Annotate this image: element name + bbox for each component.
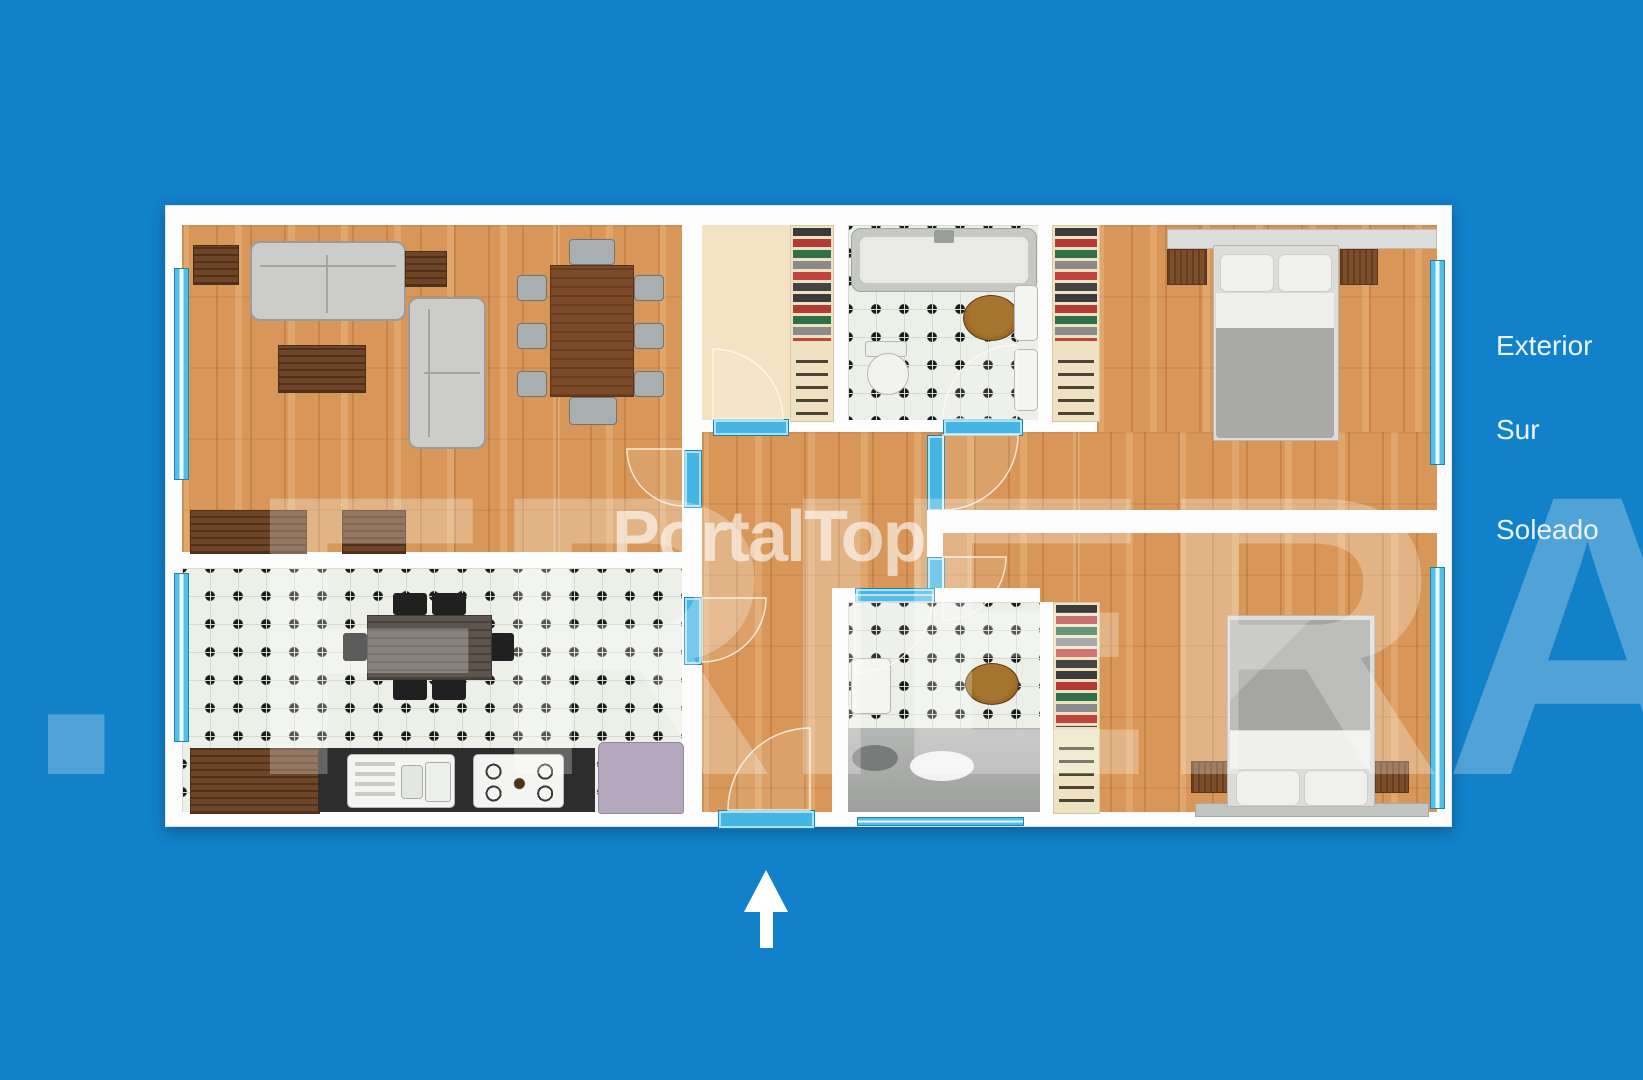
- bathroom1-cabinet: [1014, 349, 1038, 411]
- clothes-rail-icon: [793, 228, 831, 341]
- arrow-shaft: [760, 910, 773, 948]
- kitchen-chair: [490, 633, 514, 661]
- window-bedroom2: [1430, 567, 1445, 809]
- dining-chair: [569, 397, 617, 425]
- pillow: [1278, 254, 1332, 292]
- kitchen-chair: [432, 593, 466, 615]
- dining-chair: [634, 371, 664, 397]
- kitchen-table: [367, 615, 492, 680]
- bathtub-basin: [860, 237, 1028, 283]
- pillow: [1220, 254, 1274, 292]
- side-table: [405, 251, 447, 287]
- nightstand: [1191, 761, 1229, 793]
- two-seat-sofa: [408, 297, 486, 449]
- apartment-entry-door: [718, 810, 815, 829]
- wardrobe-shelves: [1058, 350, 1094, 416]
- kitchen-chair: [393, 678, 427, 700]
- bathroom2-left-wall: [832, 588, 848, 812]
- dining-chair: [517, 323, 547, 349]
- pillow: [1304, 770, 1368, 806]
- screenshot-root: H. FRIERA PortalTop Exterior Sur Soleado: [0, 0, 1643, 1080]
- coffee-table: [278, 345, 366, 393]
- window-bottom: [857, 817, 1024, 826]
- bedroom1-double-bed: [1213, 245, 1339, 441]
- bedrooms-divider-wall: [943, 510, 1437, 533]
- dining-chair: [634, 275, 664, 301]
- dining-chair: [634, 323, 664, 349]
- entry-room-door: [713, 419, 789, 436]
- window-kitchen: [174, 573, 189, 742]
- bedroom2-double-bed: [1227, 615, 1375, 807]
- wardrobe-shelves: [796, 350, 828, 416]
- kitchen-chair: [343, 633, 367, 661]
- toilet: [867, 353, 909, 395]
- sofa-seam: [424, 372, 480, 374]
- sofa-seam: [428, 309, 430, 437]
- drawer-lines: [355, 762, 395, 800]
- nightstand: [1373, 761, 1409, 793]
- kitchen-wood-counter: [190, 748, 320, 814]
- window-living: [174, 268, 189, 480]
- arrow-head: [744, 870, 788, 912]
- pillow: [1236, 770, 1300, 806]
- label-sur: Sur: [1496, 414, 1540, 446]
- refrigerator: [598, 742, 684, 814]
- kitchen-door: [684, 597, 702, 665]
- bathroom1-door: [943, 419, 1023, 436]
- dining-chair: [517, 275, 547, 301]
- bedroom2-wardrobe: [1053, 602, 1100, 814]
- duvet: [1216, 328, 1334, 438]
- sofa-seam: [326, 255, 328, 313]
- bathtub-faucet: [934, 230, 954, 243]
- wall-stub: [927, 510, 943, 557]
- sideboard: [342, 510, 406, 554]
- duvet: [1230, 620, 1370, 730]
- label-exterior: Exterior: [1496, 330, 1592, 362]
- kitchen-chair: [432, 678, 466, 700]
- kitchen-chair: [393, 593, 427, 615]
- bathroom2-right-wall: [1040, 602, 1053, 812]
- three-seat-sofa: [250, 241, 406, 321]
- wardrobe-shelves: [1059, 737, 1094, 808]
- gas-hob: [473, 754, 564, 808]
- clothes-rail-icon: [1056, 605, 1097, 727]
- kitchen-sink-unit: [347, 754, 455, 808]
- north-arrow-icon: [740, 870, 792, 950]
- sofa-seam: [260, 265, 396, 267]
- dining-chair: [517, 371, 547, 397]
- bathroom2-stool: [965, 663, 1019, 705]
- side-table: [193, 245, 239, 285]
- bedroom1-wardrobe: [1052, 225, 1100, 422]
- dining-chair: [569, 239, 615, 265]
- entry-wardrobe: [790, 225, 834, 422]
- label-soleado: Soleado: [1496, 514, 1599, 546]
- bathtub: [851, 228, 1037, 292]
- living-room-door: [684, 450, 702, 508]
- bathroom2-sink: [851, 658, 891, 714]
- window-bedroom1: [1430, 260, 1445, 465]
- shower-mat: [910, 751, 974, 781]
- sideboard: [190, 510, 307, 554]
- sink-basin: [425, 762, 451, 802]
- floor-plan: [165, 205, 1452, 827]
- sink-basin: [401, 765, 423, 799]
- shower-drain: [852, 745, 898, 771]
- bedroom1-door: [927, 435, 945, 512]
- bathroom1-sink: [1014, 285, 1038, 341]
- nightstand: [1167, 249, 1207, 285]
- bed-sheet: [1216, 292, 1334, 329]
- bathroom1-stool: [963, 295, 1019, 341]
- nightstand: [1340, 249, 1378, 285]
- dining-table: [550, 265, 634, 397]
- bed-sheet: [1230, 730, 1370, 769]
- clothes-rail-icon: [1055, 228, 1097, 341]
